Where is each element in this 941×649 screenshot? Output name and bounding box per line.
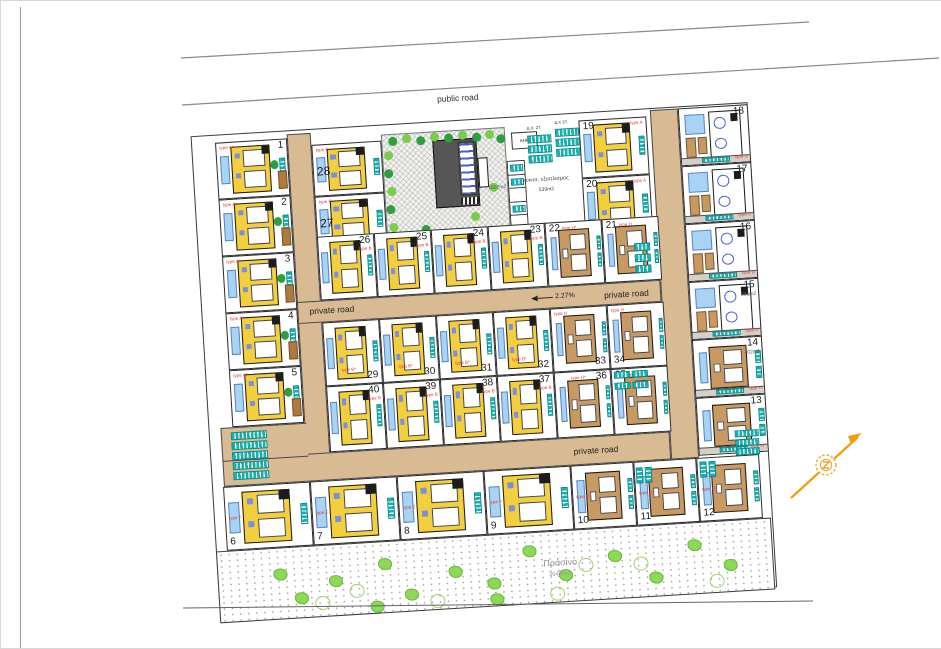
pool-icon: [559, 387, 568, 422]
plot-cell: 8type E: [397, 471, 488, 540]
building-annex: [477, 157, 489, 188]
house-body: [711, 168, 746, 217]
parking-space-icon: [645, 467, 653, 483]
parking-space-icon: [614, 382, 630, 390]
slope-arrow-icon: [531, 292, 553, 301]
pergola: [285, 284, 295, 303]
plot-cell: 1type A*: [215, 138, 290, 199]
bush-icon: [487, 577, 502, 590]
furniture: [390, 245, 394, 251]
plot-number: 34: [614, 355, 626, 366]
tree-icon: [402, 134, 412, 144]
furniture: [448, 264, 452, 270]
bush-outline-icon: [430, 594, 446, 609]
roof-detail: [356, 147, 364, 155]
parking-space-icon: [736, 447, 760, 455]
parking-space-icon: [659, 335, 664, 349]
plot-cell: 24type B: [431, 226, 492, 293]
pool-icon: [444, 395, 453, 427]
visitor-parking-label-2: Δ.Χ 2Τ.: [554, 119, 568, 125]
furniture: [335, 516, 342, 522]
bush-icon: [273, 568, 288, 581]
furniture: [334, 206, 339, 211]
plot-type-label: type E: [402, 505, 415, 510]
parking-space-icon: [387, 497, 396, 519]
plot-cell: 3type A*: [222, 252, 297, 313]
plot-cell: 39type B: [383, 379, 444, 448]
room: [568, 335, 574, 345]
house-body: [593, 123, 633, 172]
room: [662, 492, 680, 510]
furniture: [249, 381, 255, 387]
parking-space-icon: [690, 474, 696, 488]
tree-icon: [472, 133, 482, 143]
house-body: [558, 229, 592, 278]
furniture: [401, 419, 405, 425]
house-body: [326, 147, 367, 191]
plot-cell: 21type H: [601, 216, 662, 283]
room: [637, 400, 654, 419]
furniture: [597, 131, 602, 137]
parking-space-icon: [510, 164, 523, 172]
room: [431, 507, 459, 528]
house-body: [715, 226, 750, 275]
room: [397, 265, 415, 285]
parking-space-icon: [491, 398, 497, 420]
plot-cell: 22type H*: [544, 219, 605, 286]
plot-cell: 2type A*: [218, 195, 293, 256]
plot-number: 7: [317, 532, 323, 542]
room: [661, 472, 679, 489]
house-body: [711, 463, 748, 512]
plot-number: 33: [595, 356, 607, 367]
room: [724, 367, 744, 384]
pool-icon: [607, 233, 616, 267]
parking-space-icon: [601, 321, 606, 335]
parking-space-icon: [632, 381, 648, 389]
plot-type-label: type C: [319, 200, 332, 205]
plot-type-label: type D: [742, 270, 755, 275]
plot-type-label: type F: [229, 515, 242, 520]
plot-type-label: type A: [630, 121, 643, 126]
furniture: [334, 271, 338, 277]
house-body: [563, 314, 597, 363]
site-plan-sheet: public road private road private road pr…: [0, 0, 941, 649]
house-body: [241, 316, 283, 364]
room: [723, 349, 743, 365]
room: [571, 253, 588, 271]
plot-number: 5: [291, 368, 297, 378]
tub: [713, 117, 726, 129]
plot-cell: 6type F: [223, 482, 314, 551]
room: [454, 261, 472, 281]
plot-cell: 34type H: [607, 302, 668, 369]
plot-type-label: type B: [425, 393, 438, 398]
room: [606, 148, 628, 166]
deck: [696, 311, 707, 332]
pool-icon: [691, 229, 713, 250]
plot-type-label: type B: [530, 236, 543, 241]
roof-detail: [264, 202, 273, 211]
plot-number: 29: [367, 370, 379, 381]
plot-type-label: type H: [702, 486, 715, 491]
room: [345, 512, 373, 533]
plot-number: 10: [577, 516, 589, 527]
parking-space-icon: [756, 366, 762, 379]
parking-space-icon: [653, 232, 658, 246]
plot-type-label: type B: [359, 246, 372, 251]
plot-cell: 19type A: [578, 116, 649, 178]
plot-number: 8: [404, 527, 410, 537]
tree-icon: [485, 130, 495, 140]
plot-type-label: type H: [749, 385, 762, 390]
furniture: [391, 268, 395, 274]
pool-icon: [440, 331, 449, 362]
plot-type-label: type H: [576, 494, 589, 499]
plot-cell: 26type B: [317, 233, 378, 300]
parking-space-icon: [636, 467, 644, 483]
furniture: [456, 392, 460, 398]
plot-type-label: type B: [416, 243, 429, 248]
plot-number: 30: [424, 367, 436, 378]
house-body: [415, 478, 466, 533]
plot-type-label: type H: [619, 222, 632, 227]
plot-type-label: type F: [489, 499, 502, 504]
plot-cell: 32type B*: [493, 309, 554, 376]
parking-space-icon: [663, 400, 668, 414]
plot-number: 9: [491, 521, 497, 531]
tree-icon: [384, 169, 394, 179]
roof-detail: [275, 373, 284, 382]
plot-type-label: type A*: [223, 203, 238, 208]
room: [629, 396, 635, 407]
furniture: [344, 422, 348, 428]
pool-icon: [234, 384, 245, 412]
plot-cell: 9type F: [484, 466, 575, 535]
pool-icon: [586, 192, 596, 220]
tree-icon: [280, 330, 289, 339]
furniture: [397, 354, 401, 360]
communal-building: [432, 138, 480, 209]
parking-space-icon: [528, 144, 552, 153]
pool-icon: [227, 270, 238, 298]
roof-detail: [359, 199, 367, 207]
house-body: [648, 467, 685, 516]
plot-type-label: type A*: [219, 146, 234, 151]
green-area-title: Πράσινο: [543, 556, 577, 568]
room: [464, 412, 482, 433]
parking-space-icon: [528, 154, 552, 163]
furniture: [335, 224, 340, 229]
tree-icon: [471, 212, 481, 222]
parking-space-icon: [300, 503, 309, 525]
room: [717, 421, 725, 430]
house-body: [241, 489, 292, 544]
pool-icon: [230, 327, 241, 355]
parking-space-icon: [759, 424, 765, 437]
parking-space-icon: [662, 382, 667, 396]
pool-icon: [550, 237, 559, 271]
pool-icon: [612, 319, 621, 353]
plot-type-label: type B*: [341, 367, 356, 372]
plot-cell: 14type H402m2: [692, 336, 765, 398]
furniture: [333, 248, 337, 254]
plot-type-label: type E: [316, 510, 329, 515]
parking-space-icon: [699, 461, 707, 477]
room: [598, 476, 616, 493]
roof-detail: [622, 123, 630, 132]
plot-type-label: type B: [473, 239, 486, 244]
parking-space-icon: [527, 134, 551, 143]
plot-type-label: type B*: [398, 364, 413, 369]
tub: [724, 290, 737, 302]
parking-space-icon: [560, 487, 569, 509]
plot-cell: 11type H: [633, 458, 700, 526]
furniture: [399, 395, 403, 401]
parking-space-icon: [632, 370, 648, 378]
pool-icon: [387, 399, 396, 431]
parking-space-icon: [642, 193, 649, 212]
tree-icon: [416, 136, 426, 146]
room: [247, 227, 270, 245]
deck: [692, 253, 703, 274]
parking-space-icon: [605, 385, 610, 399]
room: [653, 488, 660, 498]
plot-cell: 16type D: [685, 220, 758, 282]
deck: [708, 311, 718, 328]
plot-type-label: type B: [482, 389, 495, 394]
deck: [685, 138, 696, 159]
furniture: [507, 482, 514, 488]
plot-type-label: type A*: [226, 259, 241, 264]
furniture: [598, 152, 603, 158]
bush-icon: [522, 545, 537, 558]
tub: [718, 195, 731, 207]
roof-detail: [415, 322, 422, 332]
bush-icon: [329, 575, 344, 588]
parking-space-icon: [634, 242, 650, 251]
deck: [689, 195, 700, 216]
plot-cell: 18type D: [678, 104, 751, 166]
furniture: [338, 334, 342, 340]
furniture: [421, 510, 428, 516]
plot-number: 19: [582, 122, 594, 133]
room: [258, 398, 281, 416]
roof-detail: [268, 259, 277, 268]
tree-icon: [273, 217, 282, 226]
parking-space-icon: [376, 210, 383, 227]
room: [575, 319, 592, 336]
furniture: [246, 498, 253, 504]
parking-space-icon: [735, 429, 759, 437]
room: [590, 492, 597, 502]
room: [511, 258, 529, 278]
north-arrow-icon: [791, 433, 862, 498]
house-body: [237, 259, 279, 307]
tree-icon: [277, 274, 286, 283]
plot-cell: 5type A*: [229, 366, 304, 427]
pool-icon: [684, 113, 706, 134]
room: [407, 416, 425, 437]
pool-icon: [687, 171, 709, 192]
bush-icon: [687, 539, 702, 552]
plot-type-label: type H: [554, 312, 567, 317]
furniture: [330, 154, 335, 159]
plot-number: 1: [277, 141, 283, 151]
room: [633, 336, 650, 354]
plot-cell: 4type A*: [225, 309, 300, 370]
plot-type-label: type H*: [571, 376, 586, 381]
parking-space-icon: [556, 147, 580, 156]
house-body: [244, 372, 286, 420]
room: [599, 496, 617, 514]
furniture: [508, 505, 515, 511]
parking-space-icon: [487, 333, 493, 354]
furniture: [452, 327, 456, 333]
bush-icon: [649, 571, 664, 584]
furniture: [235, 153, 241, 159]
pool-icon: [698, 352, 708, 383]
furniture: [447, 241, 451, 247]
furniture: [246, 344, 252, 350]
room: [258, 517, 286, 538]
parking-space-icon: [481, 247, 487, 268]
parking-space-icon: [368, 254, 374, 275]
parking-space-icon: [597, 253, 602, 267]
slope-value: 2.27%: [555, 292, 575, 300]
plot-type-label: type C: [316, 148, 329, 153]
parking-space-icon: [638, 135, 645, 154]
plot-number: 36: [596, 371, 608, 382]
pool-icon: [378, 248, 387, 279]
public-road-line-upper: [181, 22, 809, 58]
parking-space-icon: [602, 338, 607, 352]
plot-type-label: type A: [633, 179, 646, 184]
public-road-line-lower: [182, 58, 939, 105]
furniture: [504, 238, 508, 244]
plot-type-label: type H*: [562, 226, 577, 231]
pool-icon: [695, 287, 717, 308]
parking-space-icon: [430, 337, 436, 358]
tub: [714, 137, 727, 149]
plot-cell: 30type B*: [379, 316, 440, 383]
parking-space-icon: [512, 205, 525, 213]
parking-space-icon: [606, 403, 611, 417]
furniture: [340, 357, 344, 363]
furniture: [332, 173, 337, 178]
room: [632, 316, 649, 333]
pool-icon: [326, 338, 335, 369]
roof-detail: [539, 473, 550, 484]
building-entrance-hatch: [461, 197, 479, 205]
pool-icon: [321, 252, 330, 283]
furniture: [513, 388, 517, 394]
room: [716, 484, 723, 494]
room: [339, 169, 362, 185]
bush-icon: [490, 593, 505, 606]
deck: [698, 137, 708, 154]
plot-type-label: type D: [745, 327, 758, 332]
room: [350, 419, 368, 440]
pool-icon: [492, 241, 501, 272]
plot-number: 11: [640, 512, 651, 523]
parking-space-icon: [635, 264, 651, 273]
tree-icon: [284, 387, 293, 396]
bush-outline-icon: [578, 557, 594, 572]
house-body: [585, 471, 622, 520]
parking-space-icon: [627, 478, 633, 492]
room: [341, 268, 359, 288]
furniture: [333, 493, 340, 499]
room: [520, 409, 538, 430]
furniture: [395, 331, 399, 337]
furniture: [238, 210, 244, 216]
public-road-label: public road: [437, 92, 479, 104]
pool-icon: [702, 410, 712, 441]
house-body: [620, 311, 654, 360]
bush-outline-icon: [709, 573, 725, 588]
tree-icon: [386, 205, 396, 215]
pergola: [282, 227, 292, 246]
parking-space-icon: [474, 492, 483, 514]
parking-space-icon: [434, 401, 440, 423]
room: [619, 245, 625, 255]
furniture: [250, 401, 256, 407]
furniture: [457, 415, 461, 421]
roof-detail: [271, 316, 280, 325]
house-body: [502, 473, 553, 528]
parking-space-icon: [596, 235, 601, 249]
plot-type-label: type A*: [233, 373, 248, 378]
plot-area-label: 386m2: [741, 292, 757, 298]
deck: [705, 253, 715, 270]
furniture: [602, 210, 607, 216]
bush-icon: [608, 550, 623, 563]
house-body: [567, 378, 601, 428]
room: [625, 331, 631, 341]
roof-detail: [625, 181, 633, 190]
room: [579, 383, 596, 401]
room: [576, 339, 593, 357]
parking-space-icon: [735, 438, 759, 446]
plot-number: 14: [747, 338, 759, 349]
furniture: [248, 521, 255, 527]
room: [518, 501, 546, 522]
plot-number: 20: [586, 179, 598, 190]
plot-number: 2: [281, 197, 287, 207]
plot-area-label: 402m2: [744, 350, 760, 356]
parking-space-icon: [373, 340, 379, 361]
bush-icon: [295, 592, 310, 605]
furniture: [509, 324, 513, 330]
parking-space-icon: [543, 330, 549, 351]
furniture: [239, 230, 245, 236]
plot-cell: 15type D386m2: [688, 278, 761, 340]
pool-icon: [383, 334, 392, 365]
bush-icon: [448, 565, 463, 578]
plot-cell: 33type H: [550, 305, 611, 372]
parking-space-icon: [754, 487, 760, 501]
bush-icon: [370, 600, 385, 613]
bush-icon: [405, 588, 420, 601]
plot-type-label: type B*: [455, 360, 470, 365]
plot-cell: 25type B: [374, 230, 435, 297]
plot-cell: 10type H: [570, 462, 637, 530]
roof-detail: [529, 315, 536, 325]
room: [563, 249, 569, 259]
plot-number: 3: [284, 254, 290, 264]
plot-type-label: type H: [639, 490, 652, 495]
